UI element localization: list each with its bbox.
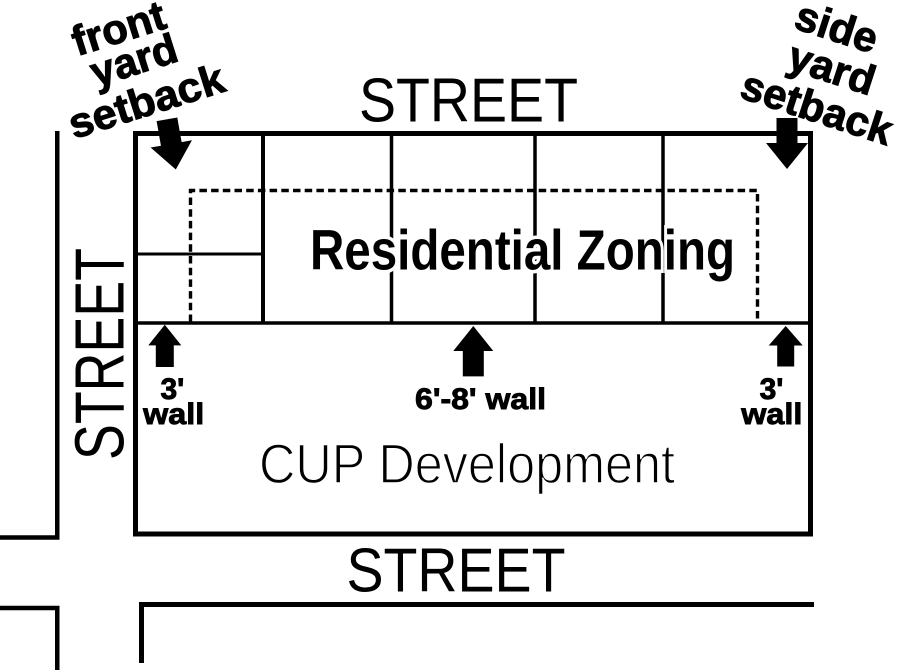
svg-text:STREET: STREET — [359, 67, 578, 136]
svg-text:wall: wall — [740, 398, 802, 431]
svg-text:CUP Development: CUP Development — [259, 432, 675, 495]
svg-text:STREET: STREET — [347, 537, 566, 606]
svg-text:Residential Zoning: Residential Zoning — [310, 219, 735, 283]
svg-text:STREET: STREET — [61, 248, 139, 460]
svg-text:wall: wall — [142, 398, 204, 431]
svg-text:6'-8' wall: 6'-8' wall — [415, 383, 546, 416]
